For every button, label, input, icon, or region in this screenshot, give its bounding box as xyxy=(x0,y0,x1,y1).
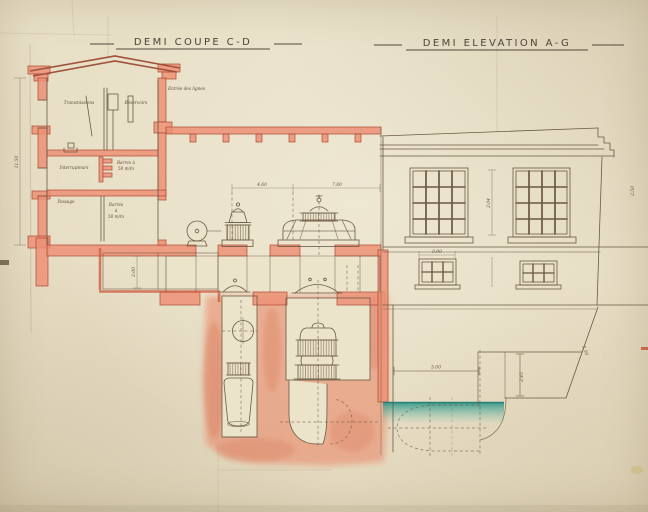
room-transmissions-label: Transmissions xyxy=(64,100,94,105)
section-title: DEMI COUPE C-D xyxy=(134,37,252,48)
dim-window-bay: 2.04 xyxy=(487,198,492,209)
dim-section-height: 11.50 xyxy=(15,156,20,169)
red-edge-mark xyxy=(641,347,648,350)
dim-step-height: 2.45 xyxy=(520,372,525,383)
title-block: DEMI COUPE C-D DEMI ELEVATION A-G xyxy=(90,37,624,50)
entree-lignes-label: Entrée des lignes xyxy=(167,86,205,91)
room-interrupteurs-label: Interrupteurs xyxy=(59,165,89,170)
paper-stain xyxy=(631,466,643,474)
roof-lines xyxy=(30,56,180,76)
left-edge-mark xyxy=(0,260,9,265)
room-barres2-label-2: à xyxy=(115,208,118,213)
dim-hall-b: 7.80 xyxy=(332,183,342,188)
dim-small-window: 0.90 xyxy=(432,250,442,255)
room-barres-label-2: 50 m/m xyxy=(118,166,134,171)
room-passage-label: Passage xyxy=(56,199,75,204)
dim-outlet-width: 5.00 xyxy=(431,366,441,371)
elevation-title: DEMI ELEVATION A-G xyxy=(423,38,571,49)
room-barres2-label-3: 50 m/m xyxy=(108,214,124,219)
red-wash-pit xyxy=(0,0,388,466)
drawing-sheet: DEMI COUPE C-D DEMI ELEVATION A-G Entrée… xyxy=(0,0,648,512)
drawing-canvas: DEMI COUPE C-D DEMI ELEVATION A-G Entrée… xyxy=(0,0,648,512)
bottom-edge-shade xyxy=(0,505,648,512)
room-barres2-label-1: Barres xyxy=(108,202,123,207)
room-barres-label-1: Barres à xyxy=(116,160,136,165)
dim-basement: 2.00 xyxy=(132,267,137,278)
room-reservoirs-label: Réservoirs xyxy=(124,100,148,105)
dim-hall-a: 4.60 xyxy=(256,183,267,188)
dim-right-edge: 2.50 xyxy=(631,186,636,197)
